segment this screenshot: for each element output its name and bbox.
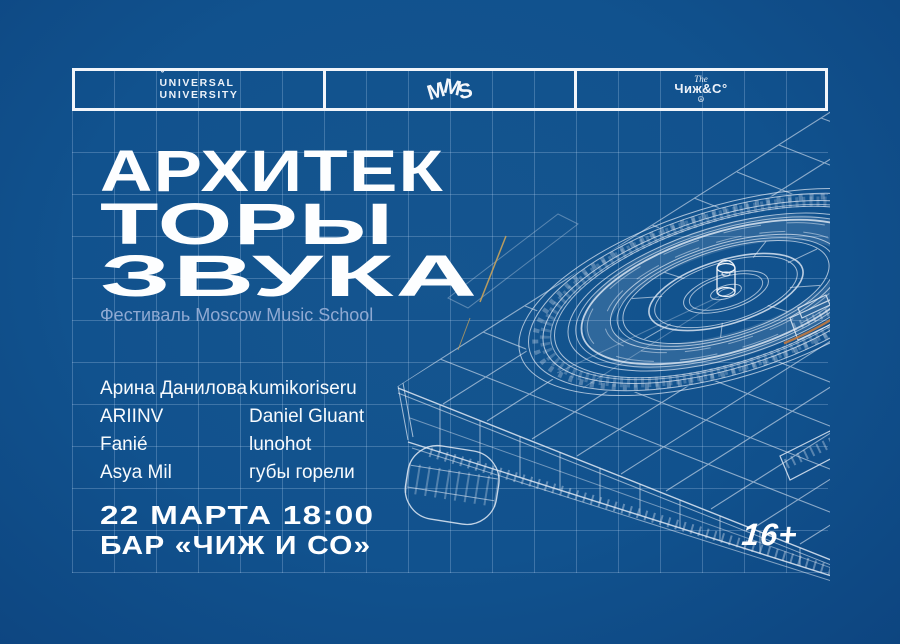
u-accent-mark: ˇ (160, 71, 164, 83)
artist-name: Asya Mil (100, 459, 249, 487)
deck-front-edge (398, 383, 830, 583)
logo-universal-university: ˇ UNIVERSAL UNIVERSITY (75, 71, 323, 108)
lineup-column-2: kumikoriseru Daniel Gluant lunohot губы … (249, 375, 364, 487)
universal-line2: UNIVERSITY (159, 90, 238, 102)
artist-name: губы горели (249, 459, 364, 487)
logo-chizh-bar: The Чиж&С° ☮ (574, 71, 825, 108)
artist-lineup: Арина Данилова ARIINV Fanié Asya Mil kum… (100, 375, 364, 487)
turntable-foot (401, 441, 503, 528)
festival-subtitle: Фестиваль Moscow Music School (100, 305, 373, 326)
event-details: 22 МАРТА 18:00 БАР «ЧИЖ И СО» (100, 500, 336, 560)
artist-name: Fanié (100, 431, 249, 459)
event-venue: БАР «ЧИЖ И СО» (100, 530, 371, 560)
artist-name: ARIINV (100, 403, 249, 431)
universal-line1: UNIVERSAL (159, 78, 238, 90)
artist-name: kumikoriseru (249, 375, 364, 403)
chizh-bird-icon: ☮ (697, 96, 704, 104)
title-line-3: ЗВУКА (100, 251, 637, 304)
lineup-column-1: Арина Данилова ARIINV Fanié Asya Mil (100, 375, 249, 487)
artist-name: lunohot (249, 431, 364, 459)
poster-title: АРХИТЕК ТОРЫ ЗВУКА (100, 146, 375, 304)
logo-strip: ˇ UNIVERSAL UNIVERSITY M M S The Чиж&С° … (72, 68, 828, 111)
age-rating-badge: 16+ (740, 517, 799, 553)
event-poster: ˇ UNIVERSAL UNIVERSITY M M S The Чиж&С° … (0, 0, 900, 644)
artist-name: Daniel Gluant (249, 403, 364, 431)
chizh-name-label: Чиж&С° (674, 82, 727, 95)
event-datetime: 22 МАРТА 18:00 (100, 500, 402, 530)
logo-mms: M M S (323, 71, 574, 108)
mms-letter: S (456, 78, 475, 105)
artist-name: Арина Данилова (100, 375, 249, 403)
